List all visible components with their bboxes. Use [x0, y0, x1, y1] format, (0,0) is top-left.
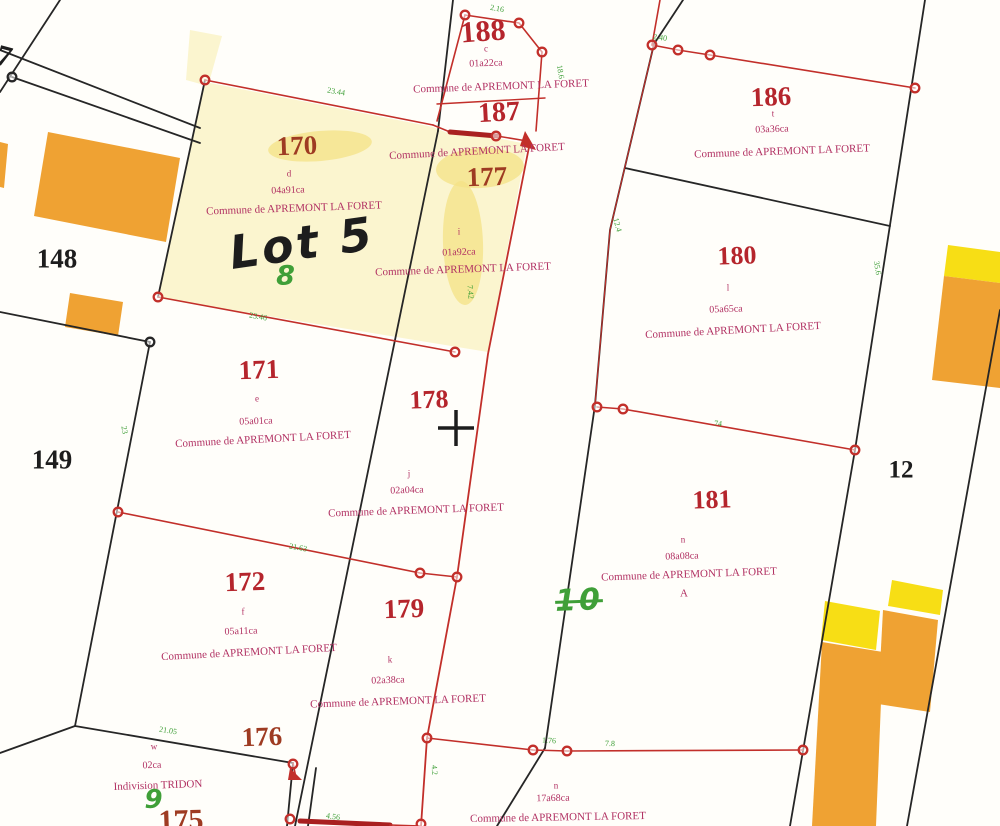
area-label: 08a08ca	[665, 551, 699, 562]
area-label: 02ca	[142, 761, 161, 772]
map-labels-layer: 714814912188c01a22caCommune de APREMONT …	[0, 0, 1000, 826]
letter-label: j	[408, 470, 411, 479]
parcel-number-149: 149	[32, 447, 73, 474]
measurement-label: 74	[714, 420, 723, 429]
green-annotation-8: 8	[276, 263, 298, 290]
parcel-number-178: 178	[409, 386, 449, 413]
commune-label: Commune de APREMONT LA FORET	[413, 78, 589, 95]
measurement-label: 23.46	[248, 311, 267, 322]
measurement-label: 12.4	[611, 217, 622, 233]
area-label: 17a68ca	[536, 794, 569, 805]
measurement-label: 2.40	[653, 33, 668, 43]
parcel-number-188: 188	[460, 15, 507, 48]
area-label: 01a22ca	[469, 58, 503, 69]
measurement-label: 35.6	[872, 260, 882, 275]
parcel-number-171: 171	[238, 356, 279, 384]
measurement-label: 4.56	[326, 812, 341, 822]
area-label: 05a11ca	[224, 626, 257, 637]
parcel-number-176: 176	[241, 723, 282, 751]
cadastral-map: 714814912188c01a22caCommune de APREMONT …	[0, 0, 1000, 826]
letter-label: n	[681, 536, 686, 545]
measurement-label: 21.63	[288, 542, 307, 553]
parcel-number-12: 12	[889, 458, 914, 483]
letter-label: l	[727, 284, 730, 293]
commune-label: Commune de APREMONT LA FORET	[645, 321, 821, 341]
parcel-number-177: 177	[466, 163, 507, 191]
parcel-number-180: 180	[717, 242, 757, 269]
measurement-label: 23.44	[326, 86, 345, 97]
parcel-number-181: 181	[692, 486, 732, 513]
measurement-label: 7.42	[465, 285, 474, 300]
parcel-number-170: 170	[276, 132, 317, 160]
parcel-number-172: 172	[224, 568, 265, 596]
letter-label: i	[458, 228, 461, 237]
measurement-label: 4.2	[430, 765, 439, 776]
parcel-number-175: 175	[158, 805, 204, 826]
area-label: 04a91ca	[271, 185, 305, 196]
commune-label: Commune de APREMONT LA FORET	[161, 643, 337, 663]
commune-label: Commune de APREMONT LA FORET	[694, 143, 870, 160]
letter-label: A	[680, 589, 688, 600]
parcel-number-148: 148	[37, 246, 78, 273]
parcel-number-7: 7	[0, 41, 15, 74]
letter-label: c	[484, 45, 488, 54]
letter-label: d	[287, 170, 292, 179]
letter-label: t	[772, 110, 775, 119]
measurement-label: 2.16	[489, 4, 504, 14]
commune-label: Commune de APREMONT LA FORET	[175, 430, 351, 450]
commune-label: Commune de APREMONT LA FORET	[470, 811, 646, 825]
area-label: 02a04ca	[390, 485, 424, 496]
letter-label: f	[242, 608, 245, 617]
parcel-number-179: 179	[383, 595, 424, 623]
area-label: 05a65ca	[709, 304, 743, 315]
letter-label: k	[388, 656, 393, 665]
commune-label: Commune de APREMONT LA FORET	[328, 502, 504, 519]
letter-label: n	[554, 782, 559, 791]
measurement-label: 21.05	[158, 726, 177, 737]
area-label: 02a38ca	[371, 675, 405, 686]
area-label: 05a01ca	[239, 416, 273, 427]
commune-label: Commune de APREMONT LA FORET	[389, 142, 565, 162]
parcel-number-187: 187	[477, 98, 520, 128]
letter-label: e	[255, 395, 259, 404]
measurement-label: 23	[119, 425, 128, 434]
letter-label: w	[151, 743, 158, 752]
area-label: 03a36ca	[755, 124, 789, 135]
parcel-number-186: 186	[750, 83, 791, 111]
measurement-label: 7.8	[605, 740, 615, 748]
area-label: 01a92ca	[442, 247, 476, 258]
green-annotation-10: 10	[555, 585, 604, 617]
commune-label: Commune de APREMONT LA FORET	[601, 566, 777, 583]
measurement-label: 18.6	[555, 64, 565, 79]
commune-label: Commune de APREMONT LA FORET	[310, 693, 486, 710]
commune-label: Commune de APREMONT LA FORET	[375, 261, 551, 278]
lot-annotation: Lot 5	[227, 210, 378, 276]
measurement-label: 1.76	[542, 737, 556, 746]
